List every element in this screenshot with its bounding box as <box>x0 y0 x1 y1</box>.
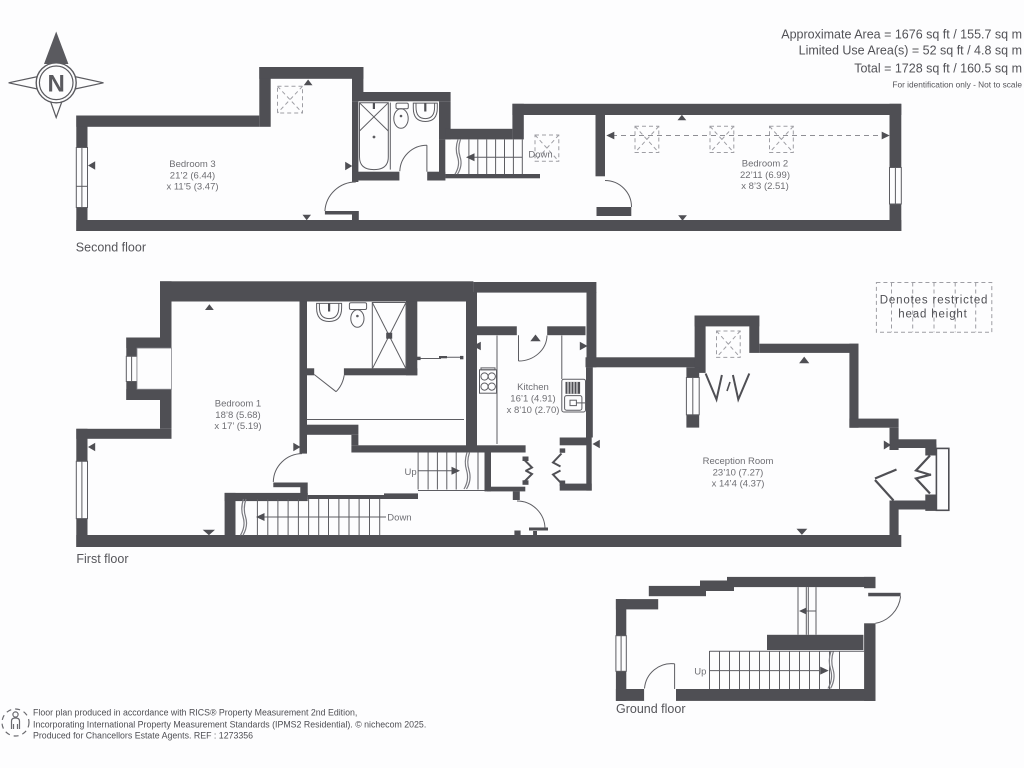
svg-text:22’11 (6.99): 22’11 (6.99) <box>740 170 790 181</box>
svg-text:Up: Up <box>694 667 706 678</box>
svg-text:Ground floor: Ground floor <box>616 702 685 716</box>
svg-text:x 17’ (5.19): x 17’ (5.19) <box>214 421 261 432</box>
svg-text:Second floor: Second floor <box>76 241 146 255</box>
svg-text:head height: head height <box>898 309 967 321</box>
svg-text:x 8’10 (2.70): x 8’10 (2.70) <box>507 405 560 416</box>
svg-text:For identification only - Not: For identification only - Not to scale <box>892 80 1022 90</box>
svg-text:Bedroom 2: Bedroom 2 <box>742 158 788 169</box>
svg-text:Limited Use Area(s) = 52 sq ft: Limited Use Area(s) = 52 sq ft / 4.8 sq … <box>799 44 1022 58</box>
svg-text:Reception Room: Reception Room <box>703 456 774 467</box>
svg-text:Bedroom 1: Bedroom 1 <box>215 399 261 410</box>
svg-text:Bedroom 3: Bedroom 3 <box>169 159 215 170</box>
svg-text:Denotes restricted: Denotes restricted <box>880 295 989 307</box>
svg-text:x 14’4 (4.37): x 14’4 (4.37) <box>712 479 765 490</box>
svg-text:First floor: First floor <box>76 552 128 566</box>
svg-text:21’2 (6.44): 21’2 (6.44) <box>170 170 215 181</box>
svg-text:Incorporating International Pr: Incorporating International Property Mea… <box>33 720 426 730</box>
svg-text:16’1 (4.91): 16’1 (4.91) <box>510 394 555 405</box>
svg-text:Kitchen: Kitchen <box>517 382 549 393</box>
svg-text:23’10 (7.27): 23’10 (7.27) <box>713 467 764 478</box>
svg-text:Up: Up <box>405 467 417 478</box>
svg-text:x 8’3 (2.51): x 8’3 (2.51) <box>741 181 789 192</box>
svg-text:Produced for Chancellors Estat: Produced for Chancellors Estate Agents. … <box>33 731 253 741</box>
svg-text:x 11’5 (3.47): x 11’5 (3.47) <box>166 182 218 193</box>
svg-text:Floor plan produced in accorda: Floor plan produced in accordance with R… <box>33 708 357 718</box>
svg-text:N: N <box>48 71 65 98</box>
svg-text:18’8 (5.68): 18’8 (5.68) <box>215 410 260 421</box>
svg-text:Approximate Area = 1676 sq ft: Approximate Area = 1676 sq ft / 155.7 sq… <box>781 28 1022 42</box>
svg-text:Down: Down <box>528 150 552 161</box>
svg-text:Down: Down <box>387 513 411 524</box>
svg-text:Total = 1728 sq ft / 160.5 sq: Total = 1728 sq ft / 160.5 sq m <box>854 62 1022 76</box>
